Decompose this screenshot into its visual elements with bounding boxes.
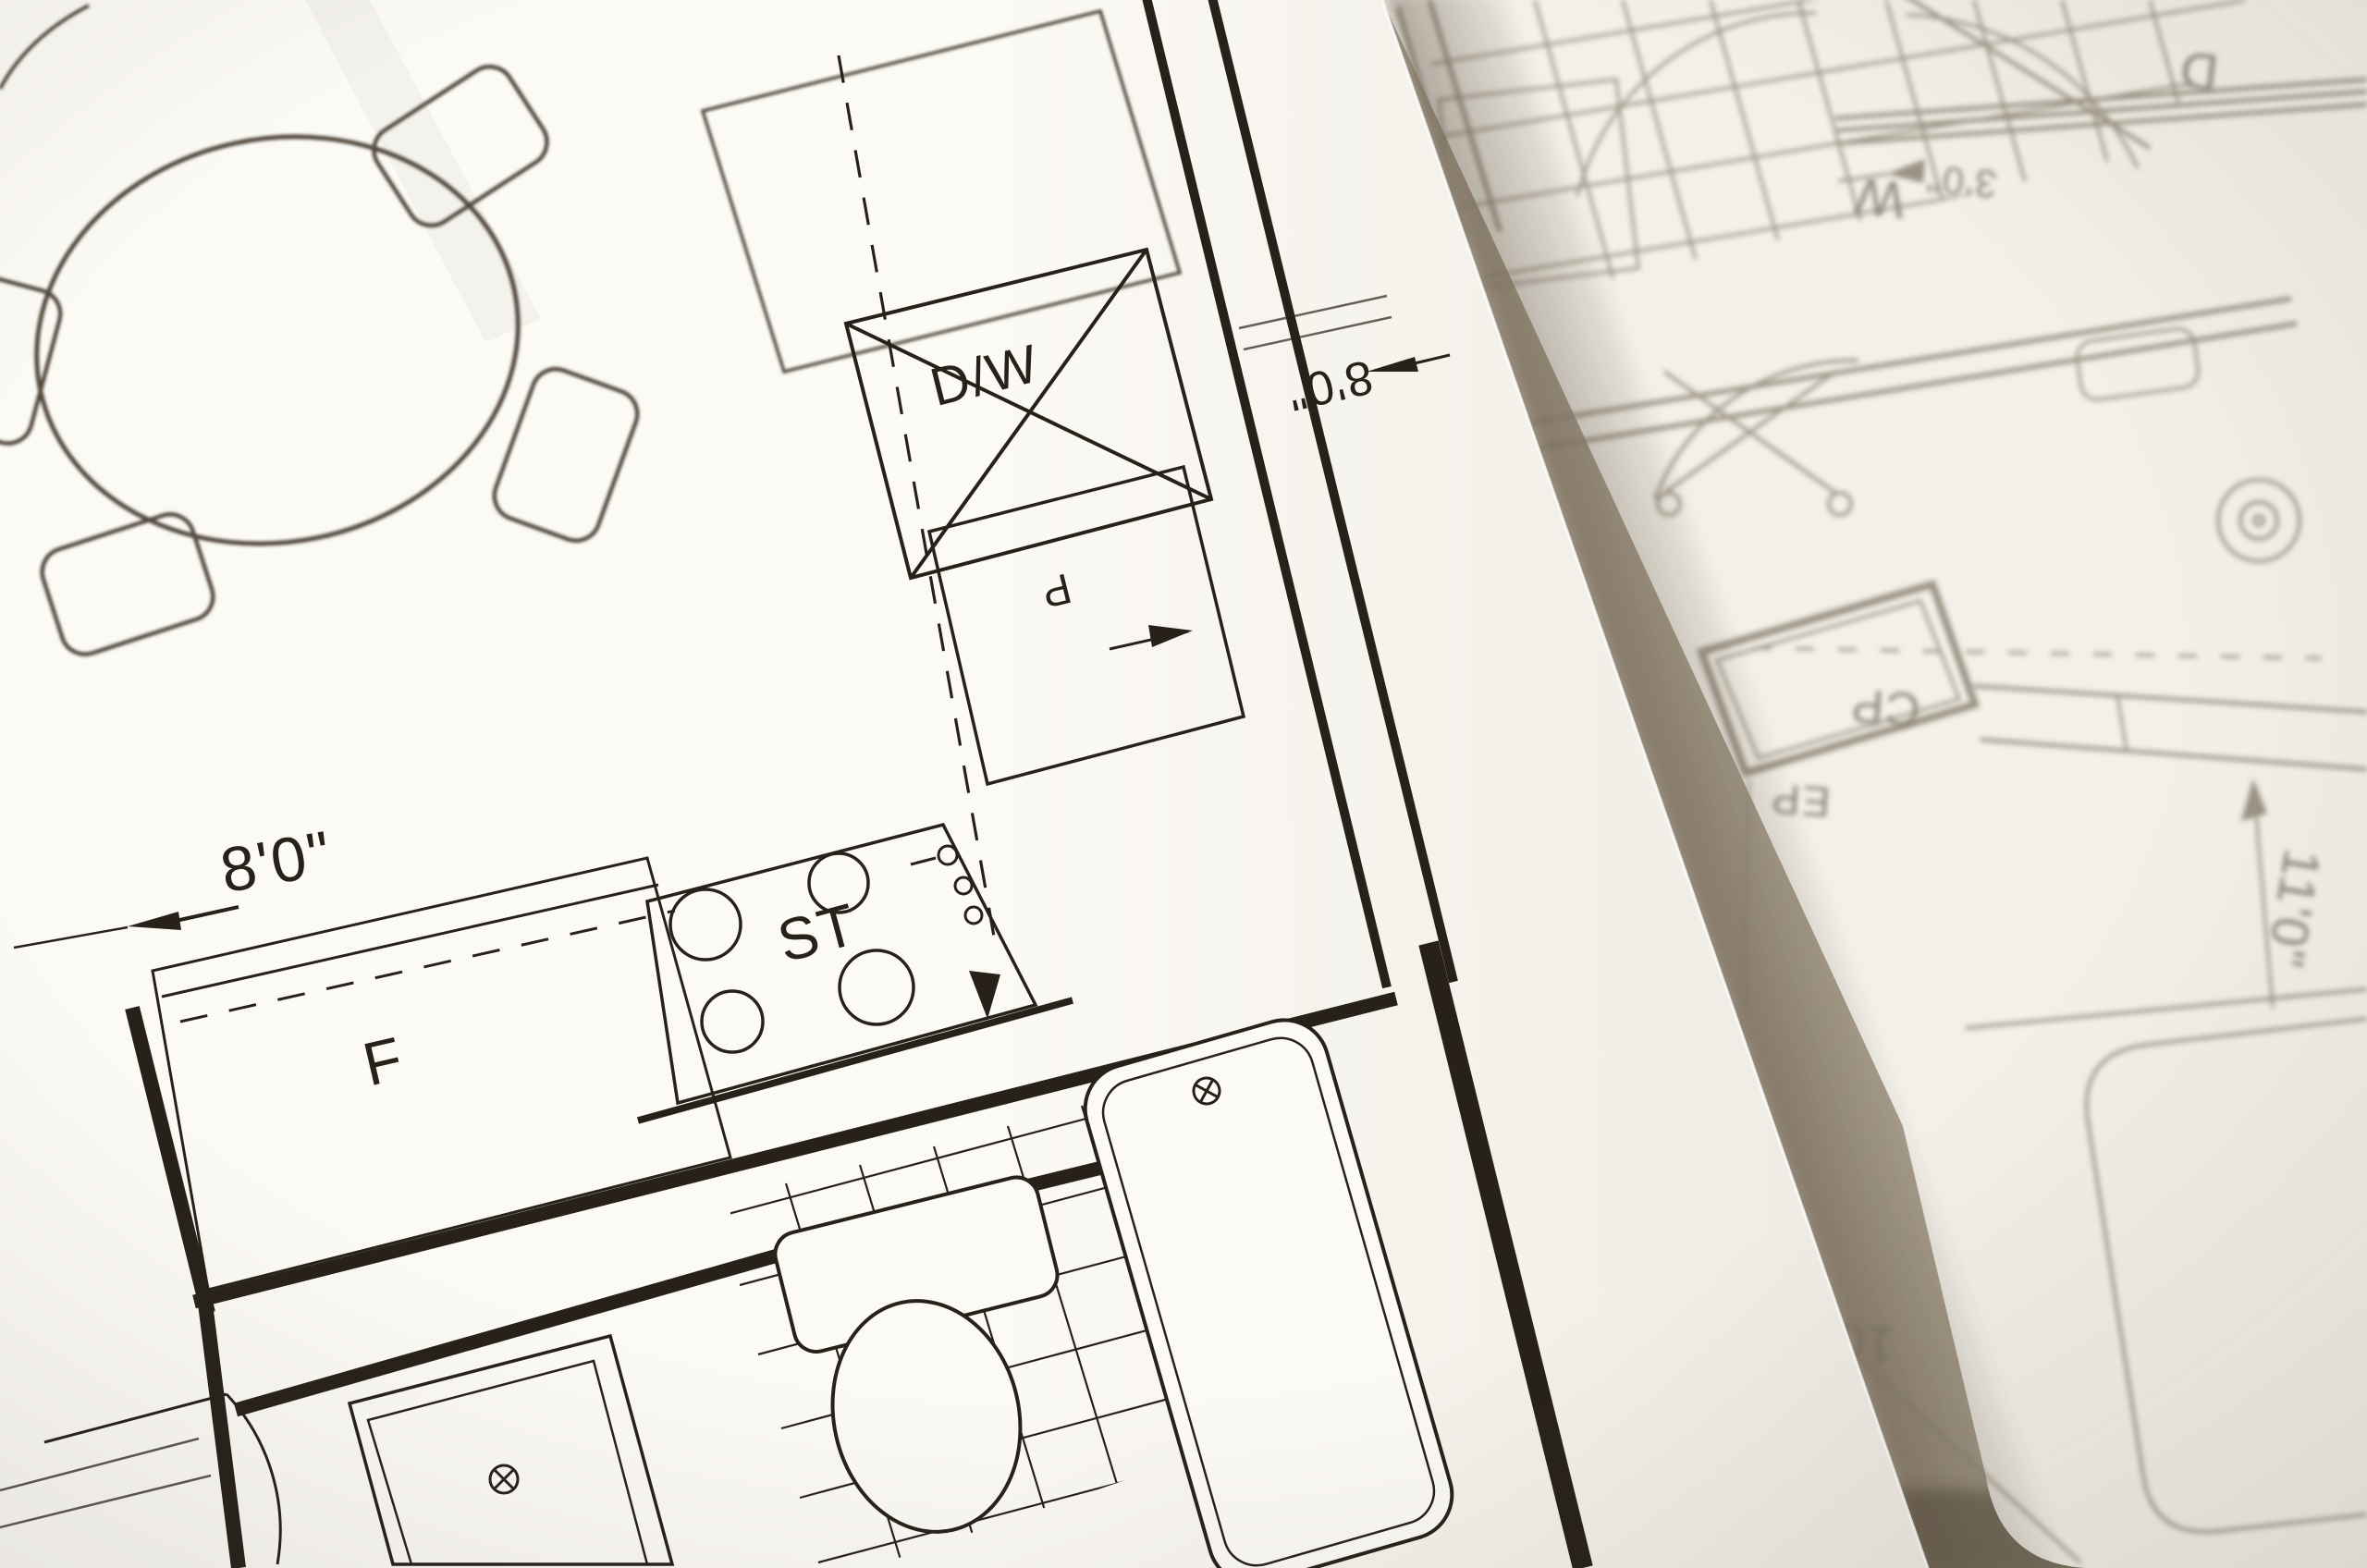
blueprint-scene: W D 3'0" CP EP 10'0" 11'0"	[0, 0, 2367, 1568]
photo-vignette	[0, 0, 2367, 1568]
blueprint-photo: W D 3'0" CP EP 10'0" 11'0"	[0, 0, 2367, 1568]
